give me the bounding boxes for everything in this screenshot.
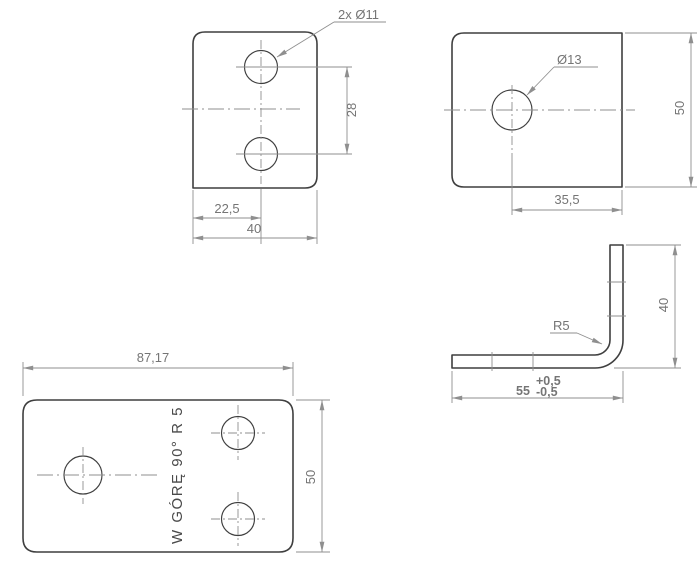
top-hole-callout: Ø13 xyxy=(527,52,598,95)
drawing-sheet: 28 22,5 40 2x Ø11 Ø13 xyxy=(0,0,700,562)
flat-pattern-view: W GÓRĘ 90° R 5 87,17 50 xyxy=(23,350,330,552)
dim-width-label: 40 xyxy=(247,221,261,236)
dim-hole-spacing-label: 28 xyxy=(344,103,359,117)
front-hole-callout-label: 2x Ø11 xyxy=(338,7,379,22)
flat-dim-length: 87,17 xyxy=(23,350,293,396)
top-dim-hole-offset: 35,5 xyxy=(512,153,622,215)
front-dim-width: 40 xyxy=(193,190,317,244)
side-dim-base: 55 +0,5 -0,5 xyxy=(452,371,623,403)
technical-drawing-canvas: 28 22,5 40 2x Ø11 Ø13 xyxy=(0,0,700,562)
flat-dim-width: 50 xyxy=(296,400,330,552)
top-centerlines xyxy=(444,85,635,150)
front-centerlines xyxy=(182,40,352,184)
front-dim-hole-spacing: 28 xyxy=(344,67,359,154)
bend-note: W GÓRĘ 90° R 5 xyxy=(169,406,186,544)
side-radius-callout-label: R5 xyxy=(553,318,570,333)
dim-hole-offset-label: 22,5 xyxy=(214,201,239,216)
flat-dim-width-label: 50 xyxy=(303,470,318,484)
top-view: Ø13 50 35,5 xyxy=(444,33,697,215)
top-dim-height-label: 50 xyxy=(672,101,687,115)
side-radius-callout: R5 xyxy=(550,318,602,344)
side-view-outline xyxy=(452,245,623,368)
side-dim-tol-minus-label: -0,5 xyxy=(536,385,558,399)
top-dim-hole-offset-label: 35,5 xyxy=(554,192,579,207)
front-view: 28 22,5 40 2x Ø11 xyxy=(182,7,386,244)
flat-dim-length-label: 87,17 xyxy=(137,350,170,365)
side-dim-leg-height-label: 40 xyxy=(656,298,671,312)
top-hole-callout-label: Ø13 xyxy=(557,52,582,67)
flat-centerlines xyxy=(37,405,265,546)
front-view-outline xyxy=(193,32,317,188)
side-dim-leg-height: 40 xyxy=(614,245,681,368)
side-view: R5 40 55 +0,5 -0,5 xyxy=(452,245,681,403)
top-dim-height: 50 xyxy=(625,33,697,187)
side-dim-base-label: 55 xyxy=(516,384,530,398)
